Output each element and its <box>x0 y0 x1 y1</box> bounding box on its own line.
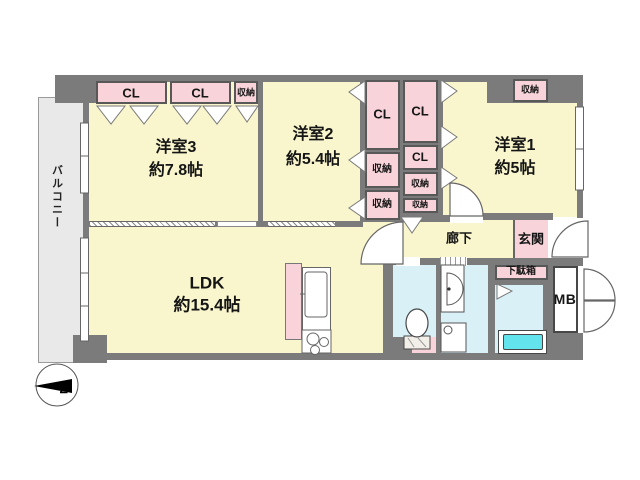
mb-door-arc-top <box>584 269 615 300</box>
door-arc-entrance <box>552 221 588 257</box>
label-shoe-cabinet: 下駄箱 <box>506 267 536 277</box>
bathroom-door-mark <box>497 284 512 299</box>
label-ldk-name: LDK <box>190 275 225 292</box>
label-midright-cl1: CL <box>411 105 428 118</box>
compass-north-text: N <box>57 386 69 394</box>
washbasin-fixture <box>441 265 464 312</box>
label-western2-name: 洋室2 <box>293 127 334 143</box>
compass: N <box>34 364 78 406</box>
label-midright-storage1: 収納 <box>411 180 429 189</box>
floor-plan: N 洋室3 約7.8帖 洋室2 約5.4帖 洋室1 約5帖 LDK 約15.4帖… <box>0 0 640 480</box>
label-western1-size: 約5帖 <box>495 161 536 177</box>
mb-door-arc-bottom <box>584 301 615 332</box>
label-western3-size: 約7.8帖 <box>149 163 203 179</box>
label-entrance: 玄関 <box>518 233 544 246</box>
label-midleft-cl: CL <box>373 108 390 121</box>
label-western1-storage: 収納 <box>521 86 539 95</box>
label-top-cl1: CL <box>122 87 139 100</box>
label-hallway: 廊下 <box>446 232 472 245</box>
label-top-cl2: CL <box>191 87 208 100</box>
label-balcony: バルコニー <box>51 165 62 230</box>
closet-door-marks-top <box>97 106 258 124</box>
toilet-fixture <box>404 309 430 349</box>
label-midleft-storage1: 収納 <box>372 165 392 175</box>
washing-machine-pan <box>441 323 466 352</box>
label-western1-name: 洋室1 <box>495 138 536 154</box>
closet-door-marks-columns <box>349 80 457 233</box>
label-top-storage: 収納 <box>237 89 255 98</box>
kitchen-stove <box>302 330 331 355</box>
label-midright-storage2: 収納 <box>412 201 428 209</box>
label-midright-cl2: CL <box>412 151 428 163</box>
kitchen-sink <box>300 272 327 317</box>
label-meter-box: MB <box>554 292 577 306</box>
door-arc-ldk <box>361 222 403 264</box>
label-ldk-size: 約15.4帖 <box>173 297 240 314</box>
door-arc-western1 <box>450 183 483 216</box>
label-western2-size: 約5.4帖 <box>286 152 340 168</box>
label-midleft-storage2: 収納 <box>372 200 392 210</box>
label-western3-name: 洋室3 <box>156 140 197 156</box>
